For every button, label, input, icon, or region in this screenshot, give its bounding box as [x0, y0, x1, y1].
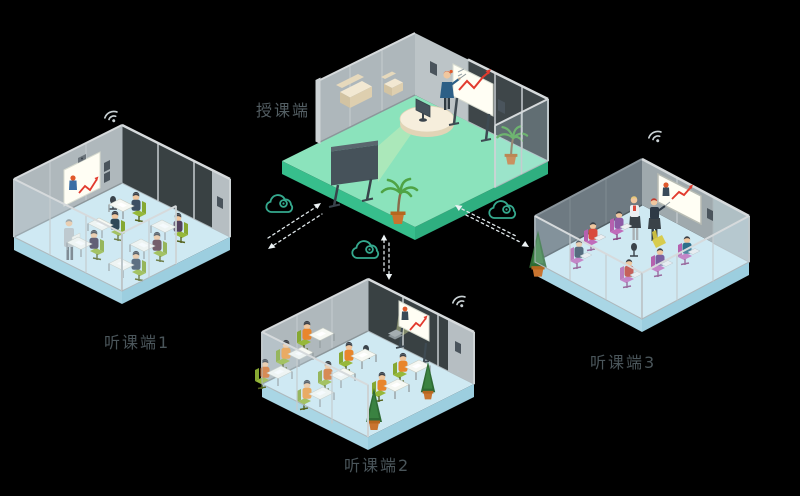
teaching-room [282, 33, 548, 240]
listening-room-3 [529, 129, 749, 332]
listening-room-1 [14, 109, 230, 304]
link-teaching-listen2 [381, 235, 392, 281]
wifi-icon [104, 109, 121, 125]
cloud-network-icon [266, 195, 292, 212]
label-listening-room-1: 听课端1 [104, 335, 170, 351]
wifi-icon [452, 294, 469, 310]
isometric-elearning-diagram: 授课端 听课端1 听课端2 听课端3 [0, 0, 800, 496]
label-listening-room-2: 听课端2 [344, 458, 410, 474]
listening-room-2 [255, 279, 474, 450]
link-teaching-listen1 [268, 203, 322, 249]
label-teaching-room: 授课端 [256, 103, 310, 119]
label-listening-room-3: 听课端3 [590, 355, 656, 371]
cloud-network-icon [352, 241, 378, 258]
scene-canvas [0, 0, 800, 496]
wifi-icon [648, 129, 665, 145]
cloud-network-icon [489, 201, 515, 218]
